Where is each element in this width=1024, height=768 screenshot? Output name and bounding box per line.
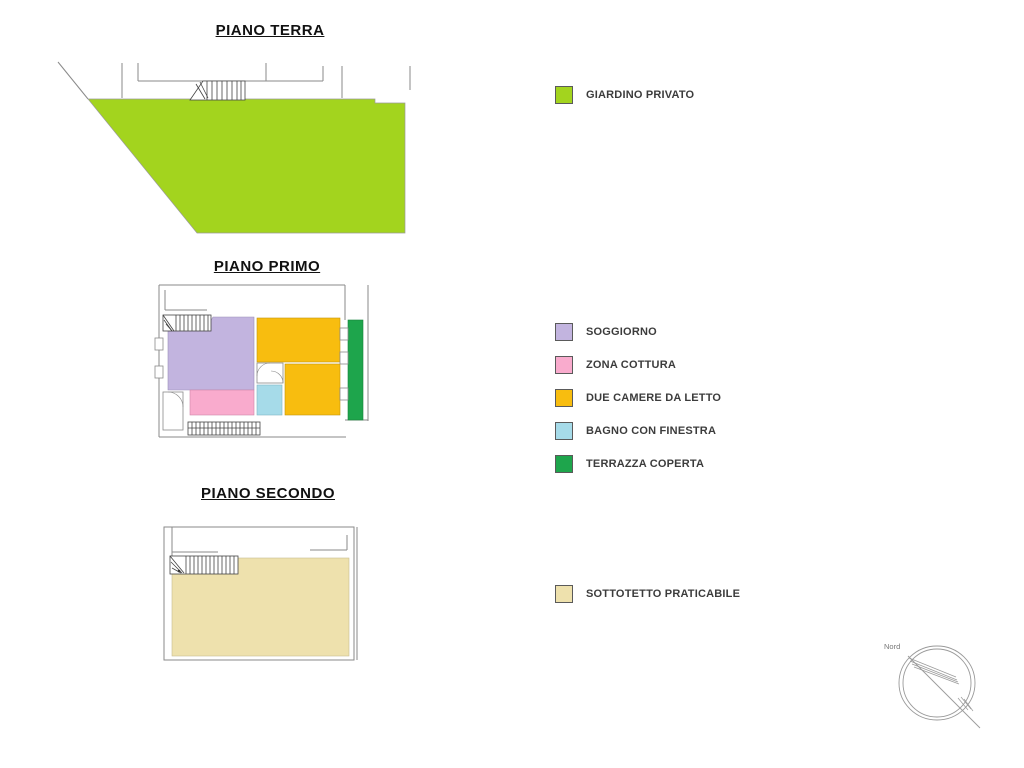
piano-terra-title: PIANO TERRA [150,22,390,39]
legend-item-bagno: BAGNO CON FINESTRA [555,422,721,439]
staircase-secondo [170,556,238,574]
balcony [163,392,183,430]
staircase-terra [190,81,245,100]
legend-item-giardino: GIARDINO PRIVATO [555,86,694,103]
camere-swatch [555,389,573,407]
north-compass-icon: Nord [870,628,1010,763]
staircase-primo-top [163,315,211,331]
soggiorno-label: SOGGIORNO [586,326,657,338]
soggiorno-swatch [555,323,573,341]
camere-label: DUE CAMERE DA LETTO [586,392,721,404]
legend-item-zona-cottura: ZONA COTTURA [555,356,721,373]
piano-secondo-title: PIANO SECONDO [148,485,388,502]
room-bagno [257,385,282,415]
terrazza-swatch [555,455,573,473]
legend-item-camere: DUE CAMERE DA LETTO [555,389,721,406]
room-terrazza-coperta [348,320,363,420]
legend-item-sottotetto: SOTTOTETTO PRATICABILE [555,585,740,602]
piano-secondo-plan [158,515,375,665]
piano-terra-plan [55,55,420,240]
room-camera-2 [285,364,340,415]
zona-cottura-label: ZONA COTTURA [586,359,676,371]
room-giardino-privato [88,99,405,233]
legend-item-soggiorno: SOGGIORNO [555,323,721,340]
legend-piano-secondo: SOTTOTETTO PRATICABILE [555,585,740,602]
sottotetto-swatch [555,585,573,603]
room-camera-1 [257,318,340,362]
zona-cottura-swatch [555,356,573,374]
terrazza-label: TERRAZZA COPERTA [586,458,704,470]
sottotetto-label: SOTTOTETTO PRATICABILE [586,588,740,600]
giardino-swatch [555,86,573,104]
giardino-label: GIARDINO PRIVATO [586,89,694,101]
bagno-label: BAGNO CON FINESTRA [586,425,716,437]
floorplan-sheet: { "titles": { "terra": "PIANO TERRA", "p… [0,0,1024,768]
vestibule [257,363,283,383]
staircase-primo-bottom [188,422,260,435]
compass-nord-label: Nord [884,642,900,651]
piano-primo-plan [150,280,380,445]
bagno-swatch [555,422,573,440]
piano-primo-title: PIANO PRIMO [147,258,387,275]
legend-item-terrazza: TERRAZZA COPERTA [555,455,721,472]
room-zona-cottura [190,390,254,415]
legend-piano-terra: GIARDINO PRIVATO [555,86,694,103]
legend-piano-primo: SOGGIORNO ZONA COTTURA DUE CAMERE DA LET… [555,323,721,472]
